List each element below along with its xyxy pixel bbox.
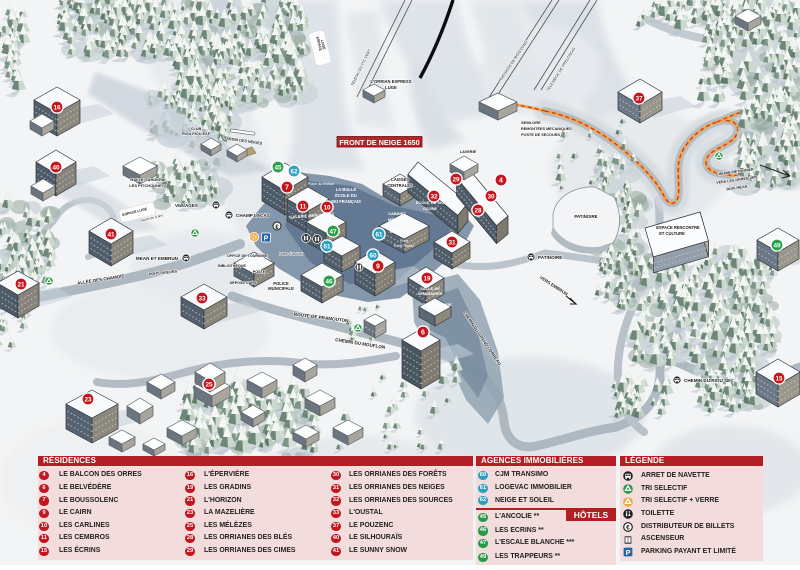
svg-text:CINÉMA: CINÉMA	[389, 229, 407, 234]
svg-text:PATINOIRE: PATINOIRE	[538, 255, 562, 260]
svg-text:40: 40	[52, 164, 60, 171]
svg-text:GENDARMERIE: GENDARMERIE	[422, 302, 452, 307]
svg-text:CHAMP LACAS: CHAMP LACAS	[236, 213, 270, 218]
svg-text:ESPACE RENCONTRE: ESPACE RENCONTRE	[656, 225, 700, 230]
svg-text:P: P	[264, 236, 269, 243]
svg-text:60: 60	[369, 252, 377, 259]
svg-text:61: 61	[375, 231, 383, 238]
svg-text:SÉMINAIRES: SÉMINAIRES	[418, 291, 443, 296]
svg-text:62: 62	[290, 168, 298, 175]
svg-text:DÉPOSE CARS: DÉPOSE CARS	[230, 280, 257, 285]
svg-text:61: 61	[323, 243, 331, 250]
svg-text:ÉCOLE DU: ÉCOLE DU	[335, 193, 357, 198]
svg-text:41: 41	[107, 231, 115, 238]
svg-text:47: 47	[329, 228, 337, 235]
svg-text:Place: Place	[400, 239, 409, 243]
svg-text:11: 11	[300, 203, 307, 210]
svg-text:32: 32	[430, 193, 438, 200]
svg-text:LA BULLE: LA BULLE	[336, 187, 357, 192]
svg-text:POSTE: POSTE	[253, 270, 266, 274]
svg-text:SEMLORE: SEMLORE	[521, 120, 541, 125]
svg-text:MEAN ET EMBRUN: MEAN ET EMBRUN	[136, 256, 179, 261]
svg-text:Place du festival: Place du festival	[308, 182, 334, 186]
svg-text:45: 45	[274, 164, 282, 171]
svg-text:PIOU PIOU ESF: PIOU PIOU ESF	[182, 132, 211, 136]
svg-text:33: 33	[198, 295, 206, 302]
svg-text:LUGE: LUGE	[385, 85, 397, 90]
svg-text:19: 19	[423, 275, 431, 282]
svg-text:CAISSES: CAISSES	[391, 177, 410, 182]
svg-text:29: 29	[452, 176, 460, 183]
svg-text:CHEMIN DU RIOU SEC: CHEMIN DU RIOU SEC	[684, 378, 734, 383]
svg-text:CLUB: CLUB	[191, 127, 202, 131]
svg-text:ET CULTURE: ET CULTURE	[659, 231, 685, 236]
svg-text:49: 49	[773, 242, 781, 249]
svg-text:REMONTÉES MÉCANIQUES: REMONTÉES MÉCANIQUES	[521, 126, 572, 131]
svg-text:PATINOIRE: PATINOIRE	[574, 214, 597, 219]
svg-text:SKI FRANÇAIS: SKI FRANÇAIS	[331, 199, 361, 204]
svg-text:37: 37	[635, 95, 643, 102]
svg-text:LAVERIE: LAVERIE	[460, 149, 477, 154]
svg-text:LES PITCHOUNETS: LES PITCHOUNETS	[129, 183, 167, 188]
svg-text:CENTRALES: CENTRALES	[387, 183, 413, 188]
svg-text:POSTE DE SECOURS: POSTE DE SECOURS	[521, 133, 560, 137]
svg-text:23: 23	[84, 396, 92, 403]
svg-text:31: 31	[448, 239, 456, 246]
svg-text:9: 9	[376, 263, 380, 270]
svg-text:P: P	[626, 548, 631, 557]
svg-text:46: 46	[325, 278, 333, 285]
svg-text:VILLAGES: VILLAGES	[175, 203, 198, 208]
svg-text:10: 10	[323, 204, 331, 211]
svg-text:7: 7	[285, 184, 289, 191]
svg-text:OZONE: OZONE	[423, 206, 438, 211]
svg-text:Place d'accueil: Place d'accueil	[279, 252, 303, 256]
svg-text:28: 28	[474, 207, 482, 214]
svg-text:MUNICIPALE: MUNICIPALE	[268, 286, 294, 291]
svg-text:BIBLIOTHÈQUE: BIBLIOTHÈQUE	[218, 263, 246, 268]
svg-text:CABINET: CABINET	[388, 211, 406, 216]
svg-text:4: 4	[499, 177, 503, 184]
svg-text:15: 15	[775, 375, 783, 382]
svg-text:MÉDICAL: MÉDICAL	[388, 217, 407, 222]
svg-text:HALTE GARDERIE: HALTE GARDERIE	[130, 177, 166, 182]
svg-text:OFFICE DE TOURISME: OFFICE DE TOURISME	[227, 254, 268, 258]
svg-text:6: 6	[421, 329, 425, 336]
svg-text:25: 25	[205, 381, 213, 388]
svg-text:21: 21	[17, 281, 25, 288]
svg-text:16: 16	[53, 104, 61, 111]
svg-text:Emile Hodoul: Emile Hodoul	[394, 244, 414, 248]
svg-text:L'ORRIAN EXPRESS: L'ORRIAN EXPRESS	[370, 79, 411, 84]
svg-text:FRONT DE NEIGE 1650: FRONT DE NEIGE 1650	[339, 138, 419, 147]
svg-text:30: 30	[487, 193, 495, 200]
svg-text:€: €	[626, 524, 630, 531]
